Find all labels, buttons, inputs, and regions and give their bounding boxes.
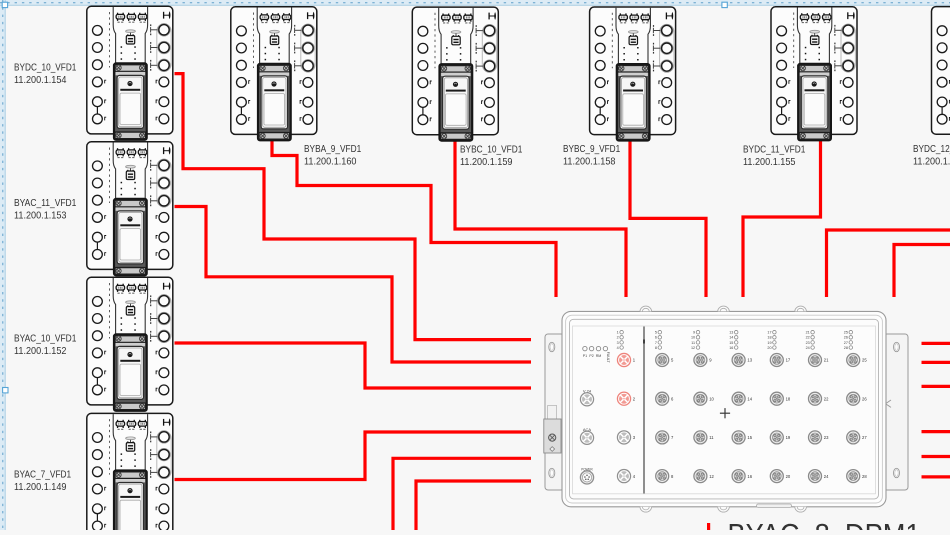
svg-text:14: 14 [729,336,733,340]
svg-text:FAULT: FAULT [606,352,610,364]
svg-text:10: 10 [691,336,695,340]
svg-text:26: 26 [844,336,848,340]
svg-text:9: 9 [693,331,695,335]
svg-text:P2: P2 [589,354,593,358]
svg-text:12: 12 [709,474,714,479]
svg-text:P1: P1 [583,354,587,358]
svg-text:10: 10 [709,396,714,401]
svg-text:BYBC_10_VFD1: BYBC_10_VFD1 [460,144,523,156]
svg-text:11: 11 [709,435,714,440]
svg-text:11: 11 [691,341,695,345]
svg-text:15: 15 [747,435,752,440]
svg-text:15: 15 [729,341,733,345]
svg-text:14: 14 [747,396,752,401]
svg-text:11.200.1.154: 11.200.1.154 [14,74,67,86]
svg-text:11.200.1.156: 11.200.1.156 [913,156,950,168]
svg-text:11.200.1.153: 11.200.1.153 [14,210,67,222]
svg-text:6: 6 [655,336,657,340]
svg-text:25: 25 [862,358,867,363]
svg-text:21: 21 [824,358,829,363]
svg-text:26: 26 [862,396,867,401]
svg-text:1: 1 [617,331,619,335]
svg-text:7: 7 [655,341,657,345]
svg-text:BYDC_12_VFD1: BYDC_12_VFD1 [913,143,950,155]
svg-text:11.200.1.149: 11.200.1.149 [14,481,67,493]
svg-text:21: 21 [806,331,810,335]
svg-text:13: 13 [747,358,752,363]
svg-text:23: 23 [824,435,829,440]
svg-text:27: 27 [844,341,848,345]
svg-text:RM: RM [596,354,602,358]
svg-text:17: 17 [767,331,771,335]
svg-text:19: 19 [786,435,791,440]
svg-text:13: 13 [729,331,733,335]
svg-text:BYDC_10_VFD1: BYDC_10_VFD1 [14,62,77,74]
svg-text:24: 24 [806,346,810,350]
svg-text:16: 16 [747,474,752,479]
svg-text:16: 16 [729,346,733,350]
svg-text:BYAC_11_VFD1: BYAC_11_VFD1 [14,197,77,209]
svg-text:17: 17 [786,358,791,363]
svg-text:18: 18 [786,396,791,401]
svg-text:BYAC_7_VFD1: BYAC_7_VFD1 [14,469,71,481]
svg-text:19: 19 [767,341,771,345]
svg-text:20: 20 [786,474,791,479]
svg-text:18: 18 [767,336,771,340]
svg-text:28: 28 [862,474,867,479]
svg-text:2: 2 [617,336,619,340]
svg-text:11.200.1.158: 11.200.1.158 [563,156,616,168]
svg-text:11.200.1.152: 11.200.1.152 [14,345,67,357]
svg-text:8: 8 [655,346,657,350]
svg-text:28: 28 [844,346,848,350]
svg-text:BYDC_11_VFD1: BYDC_11_VFD1 [743,144,806,156]
svg-text:BYBC_9_VFD1: BYBC_9_VFD1 [563,143,620,155]
svg-text:11.200.1.155: 11.200.1.155 [743,156,796,168]
svg-text:27: 27 [862,435,867,440]
svg-text:25: 25 [844,331,848,335]
svg-text:11.200.1.159: 11.200.1.159 [460,156,513,168]
svg-text:BYBA_9_VFD1: BYBA_9_VFD1 [304,143,361,155]
svg-text:5: 5 [655,331,657,335]
svg-text:23: 23 [806,341,810,345]
svg-text:BYAC_10_VFD1: BYAC_10_VFD1 [14,333,77,345]
svg-text:12: 12 [691,346,695,350]
svg-text:22: 22 [824,396,829,401]
svg-text:3: 3 [617,341,619,345]
svg-text:BYAC_8_DPM1: BYAC_8_DPM1 [728,519,921,530]
svg-text:24: 24 [824,474,829,479]
svg-text:20: 20 [767,346,771,350]
svg-text:4: 4 [617,346,619,350]
svg-text:11.200.1.160: 11.200.1.160 [304,156,357,168]
svg-text:22: 22 [806,336,810,340]
